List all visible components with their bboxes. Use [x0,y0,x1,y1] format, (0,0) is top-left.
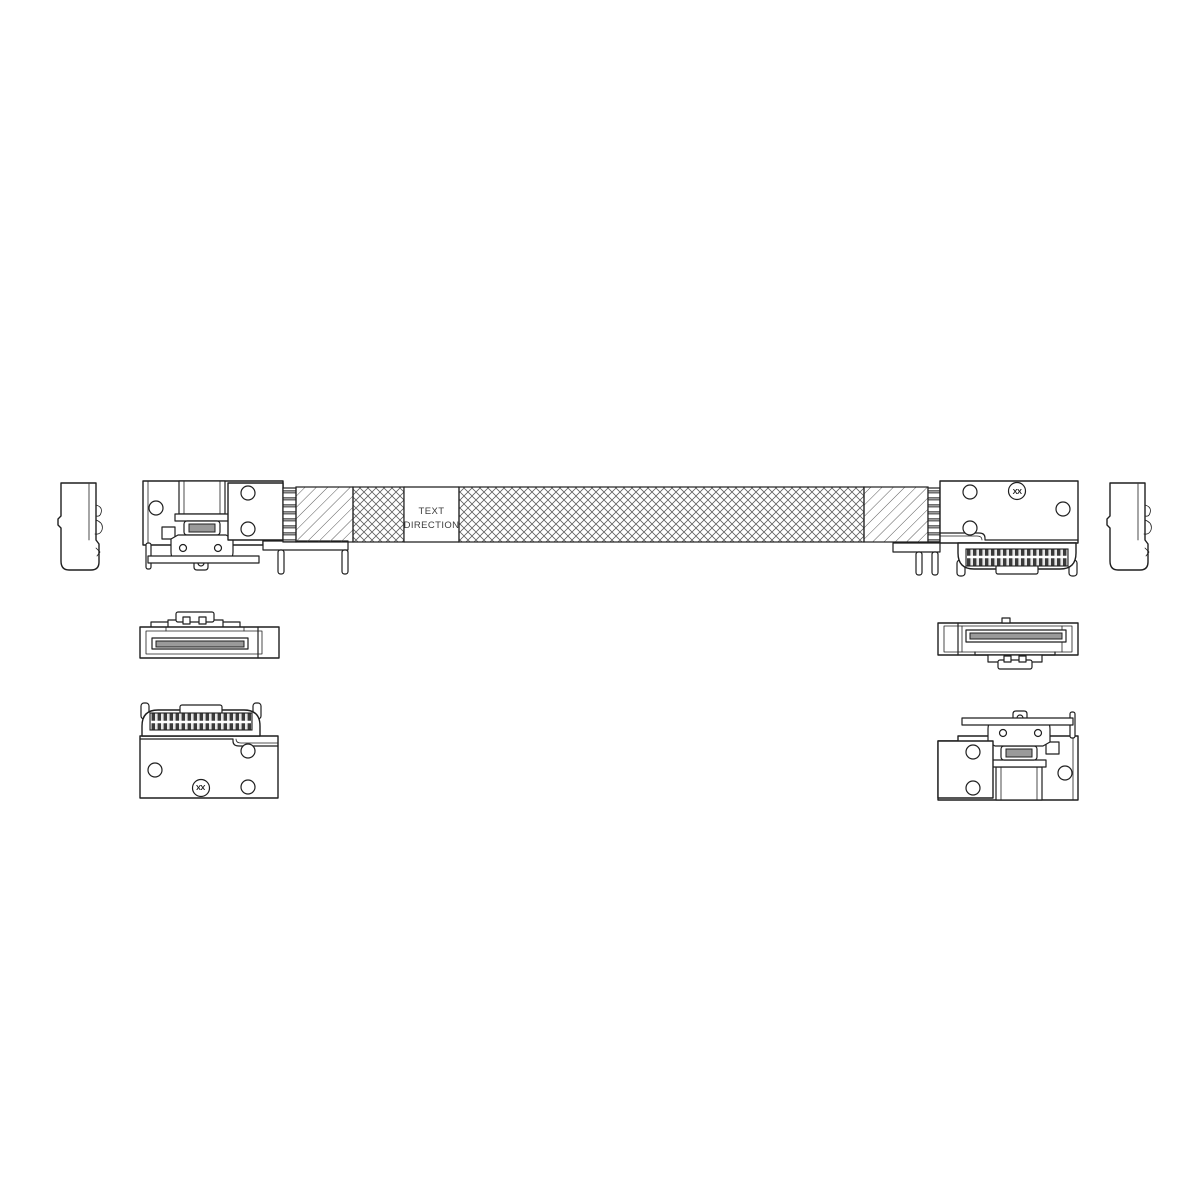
bottom-rail [148,556,259,563]
cable-label: TEXT DIRECTION [404,487,460,542]
bracket-leg [916,552,922,575]
bracket-ledge [893,543,940,552]
right-end-cap-side-view [1107,483,1151,570]
cable-label-line1: TEXT [419,506,445,517]
ribbon-wires-right [928,488,940,542]
braid-sleeve-middle [459,487,864,542]
drawing-background [0,0,1200,1200]
latch-window [1019,656,1026,662]
ribbon-wires-left [283,488,296,542]
bracket-leg [932,552,938,575]
technical-drawing-page: TEXT DIRECTION XX [0,0,1200,1200]
mating-slot [156,641,244,647]
screw-hole-top [241,486,255,500]
latch-plate [175,514,229,521]
datum-mark: XX [1009,483,1026,500]
strain-relief-right [864,487,928,542]
latch-clip-bar [189,524,215,532]
cable-label-line2: DIRECTION [404,520,460,531]
top-tick [1002,618,1010,623]
latch-housing [179,481,225,514]
bracket-leg [342,550,348,574]
spring-hole-left [180,545,187,552]
latch-cap [998,660,1032,669]
latch-window [183,617,190,624]
right-connector-front-view: XX [940,481,1078,576]
screw-hole-bottom [241,522,255,536]
bracket-leg [278,550,284,574]
cable: TEXT DIRECTION [283,487,940,542]
datum-text: XX [1013,487,1022,496]
strain-relief-left [296,487,353,542]
latch-cap [176,612,214,622]
latch-window [199,617,206,624]
screw-hole-right [1056,502,1070,516]
left-connector-bottom-view [140,703,278,798]
flange-panel [228,483,283,540]
latch-window [1004,656,1011,662]
braid-sleeve-left [353,487,404,542]
left-end-cap-side-view [58,483,102,570]
end-cap-outline [58,483,99,570]
mating-slot [970,633,1062,639]
spring-hole-right [215,545,222,552]
screw-hole-top [963,485,977,499]
screw-hole-bottom [963,521,977,535]
cable-assembly-drawing: TEXT DIRECTION XX [0,0,1200,1200]
screw-hole-left [149,501,163,515]
